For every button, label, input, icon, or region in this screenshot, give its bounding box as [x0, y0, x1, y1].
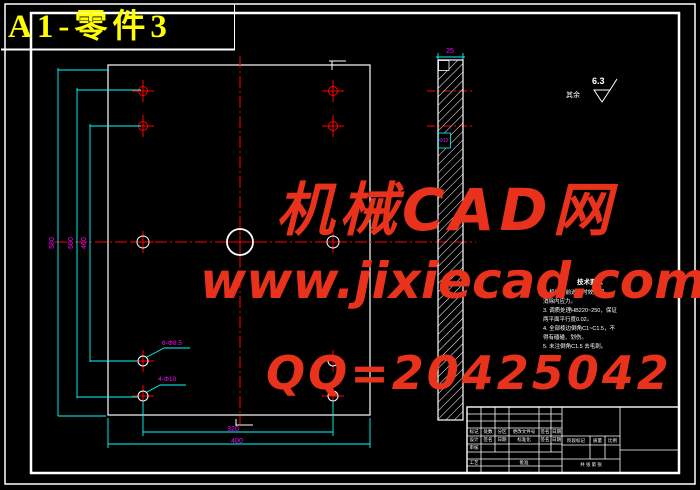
- tb-rev-docno: 更改文件号: [509, 429, 539, 435]
- tb-sig: 签名: [481, 437, 495, 443]
- roughness-other-label: 其余: [566, 90, 580, 100]
- tb-rev-sig: 签名: [539, 429, 551, 435]
- tb-rev-date: 日期: [551, 429, 562, 435]
- dim-bottom-outer: 400: [222, 438, 252, 446]
- dim-left-outer: 580: [49, 228, 57, 258]
- tb-rev-count: 处数: [481, 429, 495, 435]
- hole-callout-lower: 4-Φ10: [158, 376, 176, 384]
- roughness-value: 6.3: [592, 76, 605, 86]
- cad-drawing-screen: A1-零件3 580 500 460 320 400 25 Φ12 6-Φ8.5…: [0, 0, 700, 490]
- watermark-url: www.jixiecad.com: [200, 252, 700, 310]
- tb-approve: 批准: [509, 460, 539, 466]
- hole-callout-upper: 6-Φ8.5: [162, 340, 182, 348]
- tb-date: 日期: [495, 437, 509, 443]
- section-notch-label: Φ12: [439, 138, 449, 144]
- dim-bottom-inner: 320: [218, 426, 248, 434]
- tb-scale: 比例: [605, 438, 620, 444]
- tb-stage: 阶段标记: [562, 438, 590, 444]
- tb-process: 工艺: [467, 460, 481, 466]
- dim-left-inner: 460: [81, 228, 89, 258]
- tb-rev-zone: 分区: [495, 429, 509, 435]
- tb-check: 审核: [467, 445, 481, 451]
- tb-sheet-info: 共 张 第 张: [562, 462, 620, 468]
- dim-section-top: 25: [438, 48, 462, 56]
- note-line: 得有磕碰、划伤。: [543, 334, 637, 343]
- tb-standardize: 标准化: [509, 437, 539, 443]
- watermark-qq: QQ=20425042: [266, 346, 672, 400]
- dim-left-middle: 500: [68, 228, 76, 258]
- note-line: 两平面平行度0.02。: [543, 316, 637, 325]
- watermark-site-name: 机械CAD网: [276, 163, 616, 247]
- tb-design: 设计: [467, 437, 481, 443]
- tb-rev-mark: 标记: [467, 429, 481, 435]
- tb-date2: 日期: [551, 437, 562, 443]
- note-line: 4. 全部棱边倒角C1~C1.5，不: [543, 325, 637, 334]
- tb-weight: 质量: [590, 438, 605, 444]
- tb-sig2: 签名: [539, 437, 551, 443]
- page-title: A1-零件3: [8, 9, 172, 45]
